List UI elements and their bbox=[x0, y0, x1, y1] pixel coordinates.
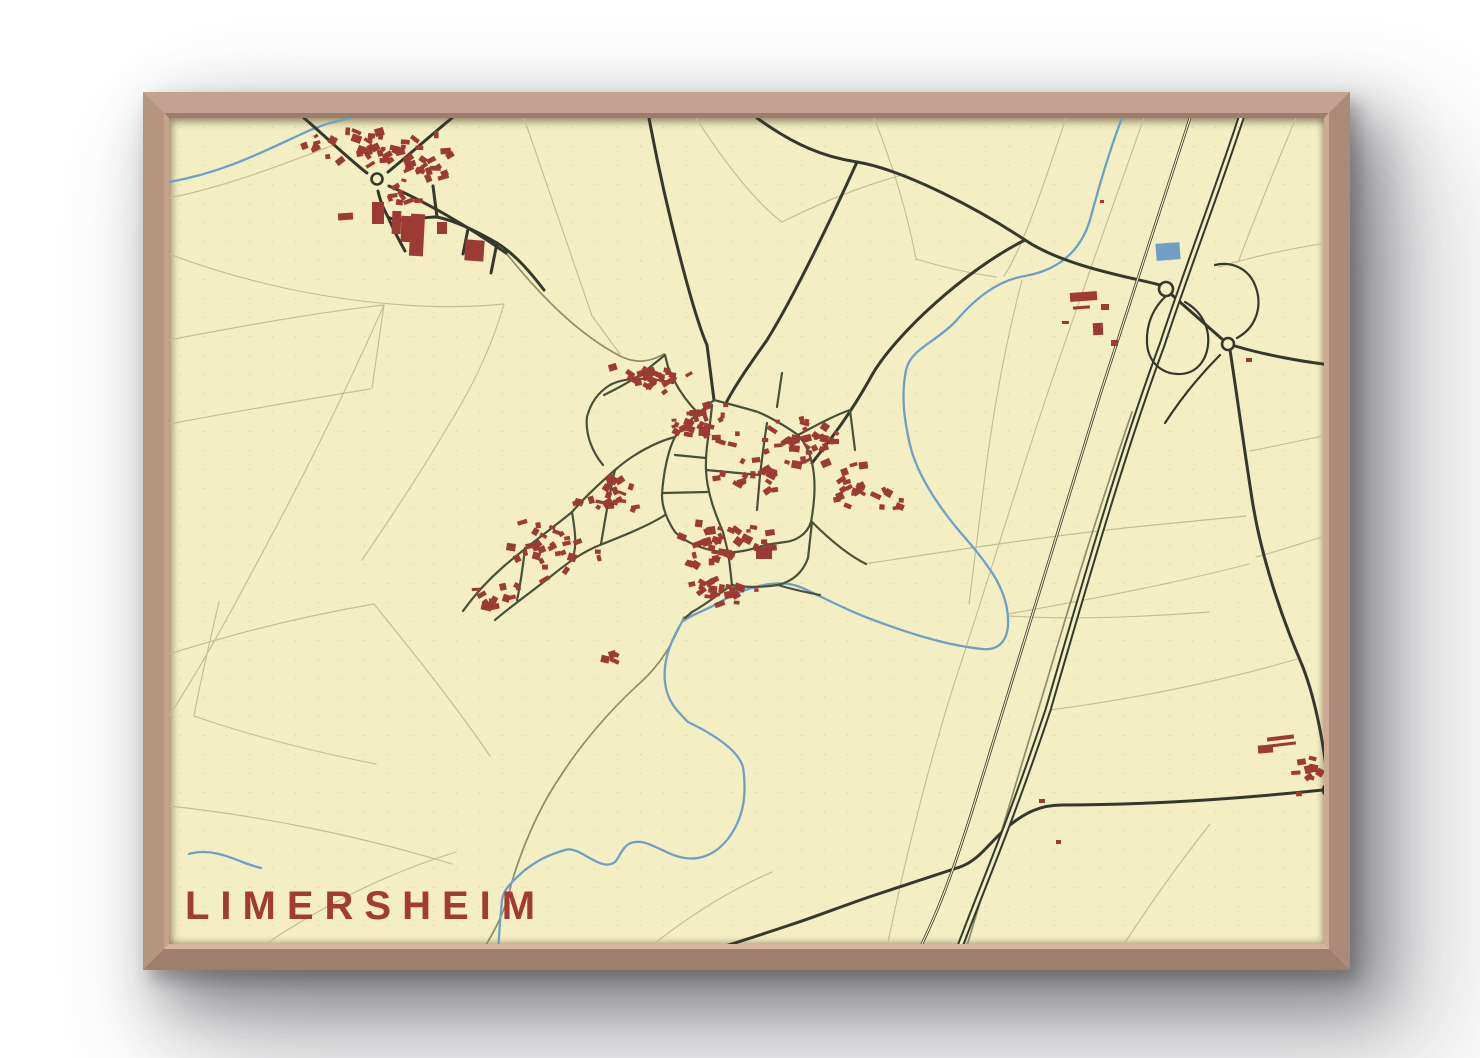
road-lines bbox=[304, 118, 1324, 944]
buildings bbox=[300, 127, 1324, 844]
map-paper: LIMERSHEIM bbox=[169, 118, 1324, 944]
poster-frame: LIMERSHEIM bbox=[143, 92, 1350, 970]
frame-inner-lip: LIMERSHEIM bbox=[164, 113, 1329, 949]
page-background: LIMERSHEIM bbox=[0, 0, 1480, 1058]
street-lines bbox=[463, 355, 866, 620]
roundabouts bbox=[372, 174, 1325, 797]
track-lines bbox=[482, 253, 1132, 944]
poster-title: LIMERSHEIM bbox=[185, 884, 546, 929]
map-canvas bbox=[169, 118, 1324, 944]
